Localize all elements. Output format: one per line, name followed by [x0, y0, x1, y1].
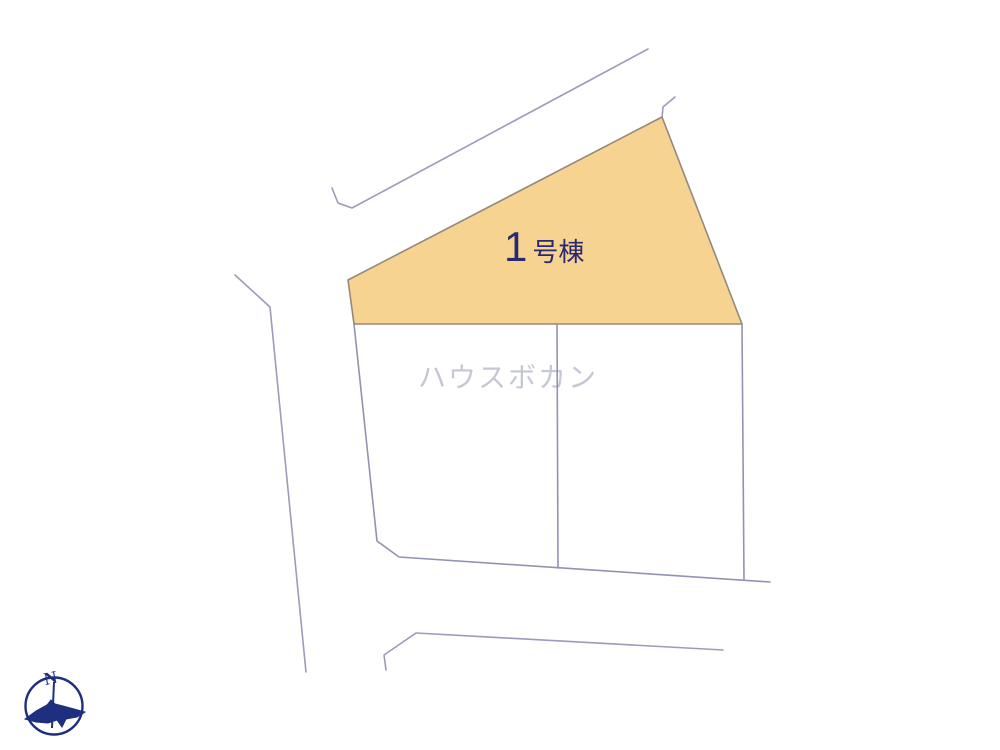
compass-n-label: N [42, 667, 59, 689]
lot-1-label: 1 号棟 [504, 226, 584, 268]
lot-1-parcel [348, 117, 742, 324]
parcel-boundary-left-bottom [354, 324, 770, 582]
road-line-bottom [384, 633, 723, 670]
site-plan: ハウスボカン 1 号棟 N [0, 0, 1000, 750]
parcel-divider [557, 324, 558, 568]
road-line-left [235, 275, 306, 672]
lot-map-canvas [0, 0, 1000, 750]
lot-1-number: 1 [504, 226, 527, 268]
compass-north-icon: N [14, 662, 98, 746]
road-line-top-right-jog [662, 97, 675, 118]
lot-1-suffix: 号棟 [532, 239, 584, 265]
parcel-boundary-right [742, 324, 744, 580]
unlabeled-parcel-boundaries [354, 324, 770, 582]
